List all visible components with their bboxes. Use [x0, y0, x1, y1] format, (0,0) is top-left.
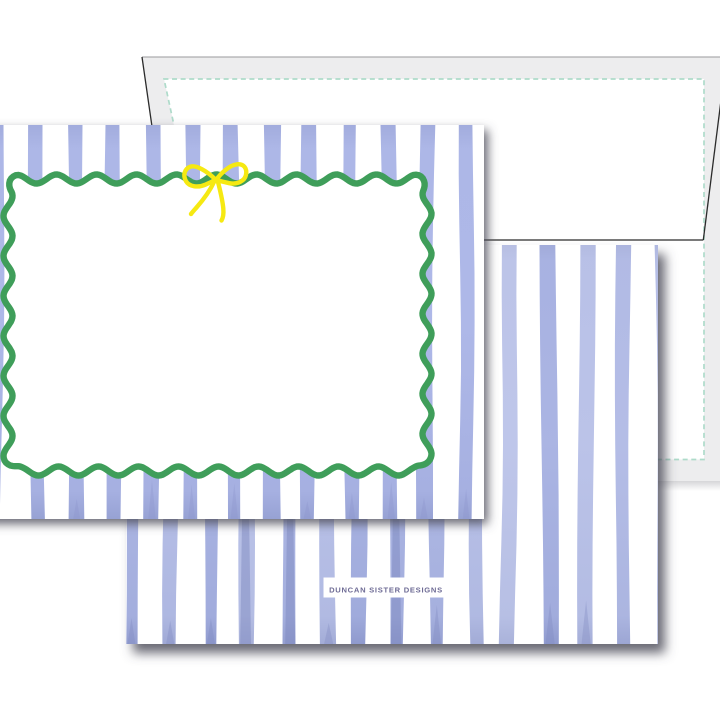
svg-text:DUNCAN SISTER DESIGNS: DUNCAN SISTER DESIGNS: [329, 586, 443, 595]
